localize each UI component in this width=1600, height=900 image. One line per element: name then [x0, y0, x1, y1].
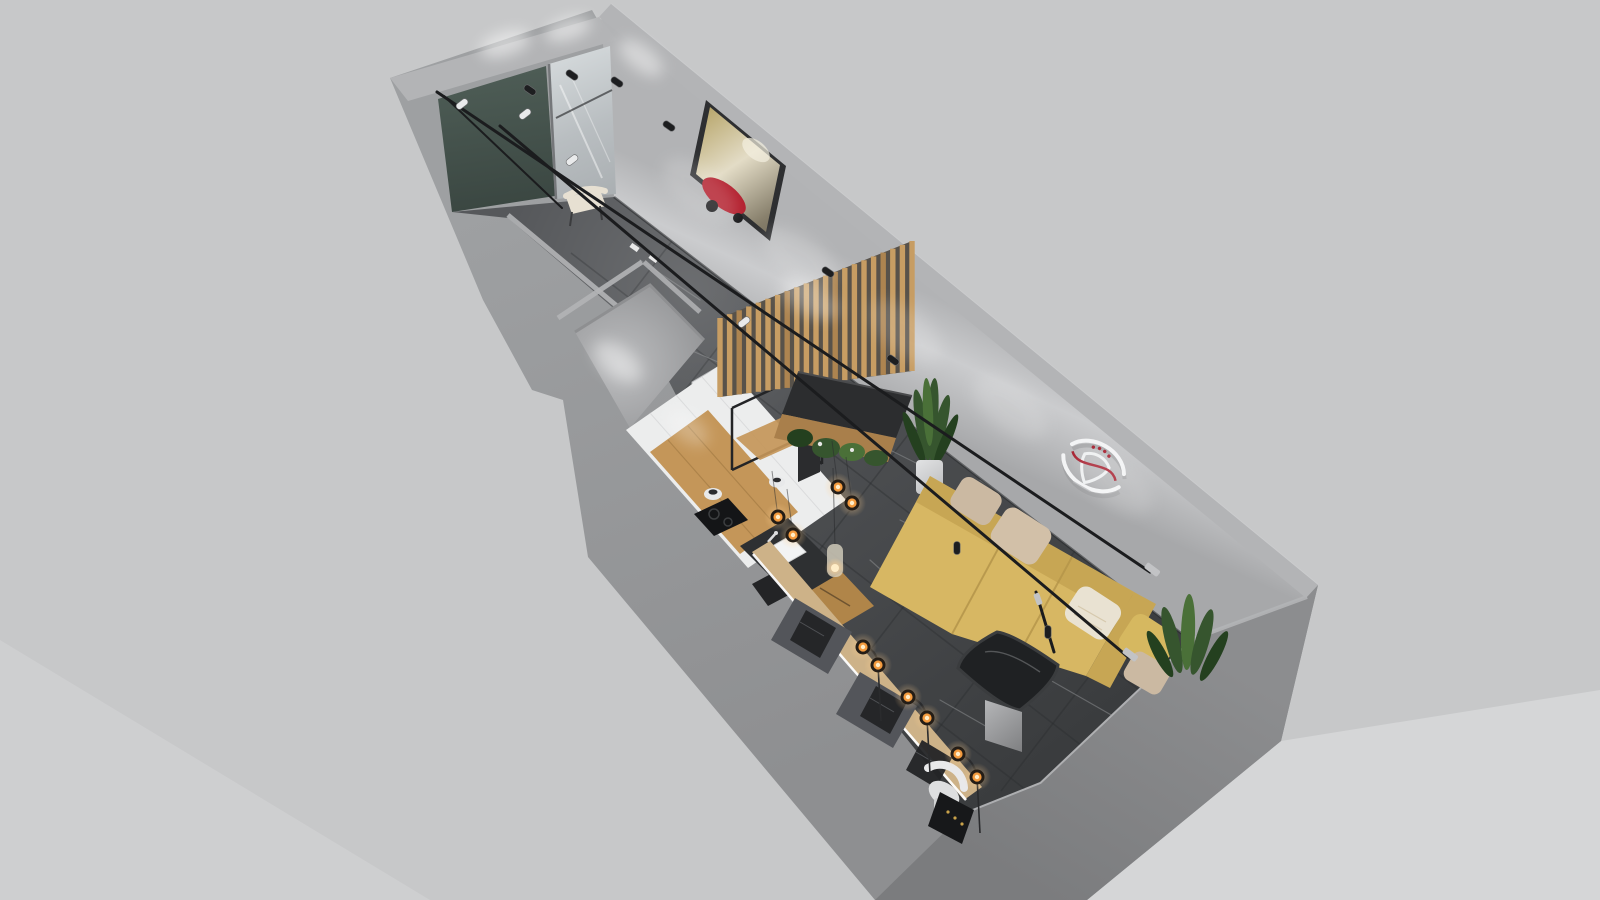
- wood-slat: [842, 268, 847, 380]
- wood-slat: [727, 314, 732, 396]
- wood-slat: [833, 272, 838, 382]
- bulb-core: [791, 533, 795, 537]
- bulb-core: [906, 695, 910, 699]
- black-spotlight: [954, 542, 961, 555]
- bulb-core: [876, 663, 880, 667]
- black-spotlight: [1045, 626, 1052, 639]
- wood-slat: [775, 295, 780, 389]
- bulb-core: [956, 752, 960, 756]
- bulb-core: [975, 775, 979, 779]
- bulb-core: [850, 501, 854, 505]
- wood-slat: [717, 318, 722, 397]
- bulb-core: [925, 716, 929, 720]
- bulb-core: [836, 485, 840, 489]
- apartment-3d-render: [0, 0, 1600, 900]
- render-canvas: [0, 0, 1600, 900]
- faucet-head: [774, 531, 778, 535]
- wood-slat: [861, 260, 866, 377]
- bulb-core: [861, 645, 865, 649]
- wood-slat: [852, 264, 857, 379]
- bulb-core: [776, 515, 780, 519]
